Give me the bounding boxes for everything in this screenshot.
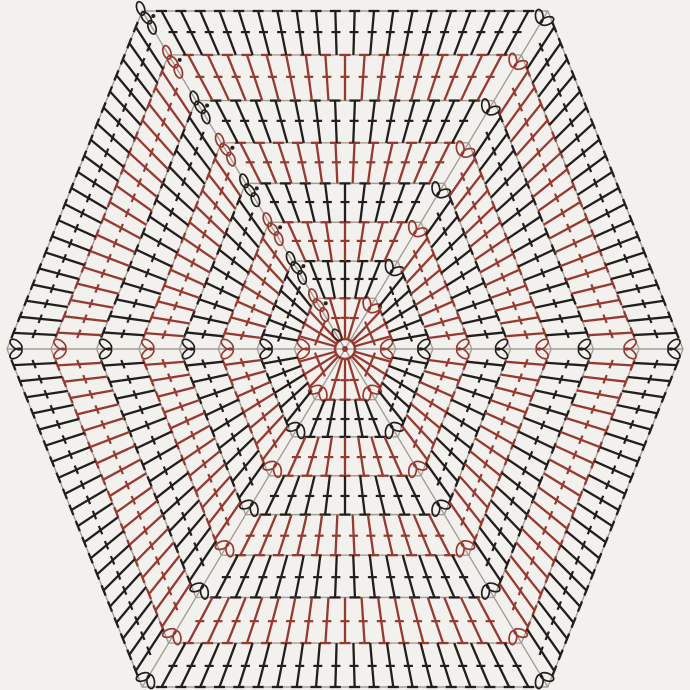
round-start-dot [255, 186, 259, 190]
round-start-dot [324, 301, 328, 305]
round-start-dot [151, 14, 155, 18]
round-start-dot [278, 225, 282, 229]
round-start-dot [230, 146, 234, 150]
round-start-dot [205, 104, 209, 108]
round-start-dot [178, 58, 182, 62]
crochet-chart-page [0, 0, 690, 690]
crochet-hexagon-diagram [0, 0, 690, 690]
round-start-dot [301, 264, 305, 268]
